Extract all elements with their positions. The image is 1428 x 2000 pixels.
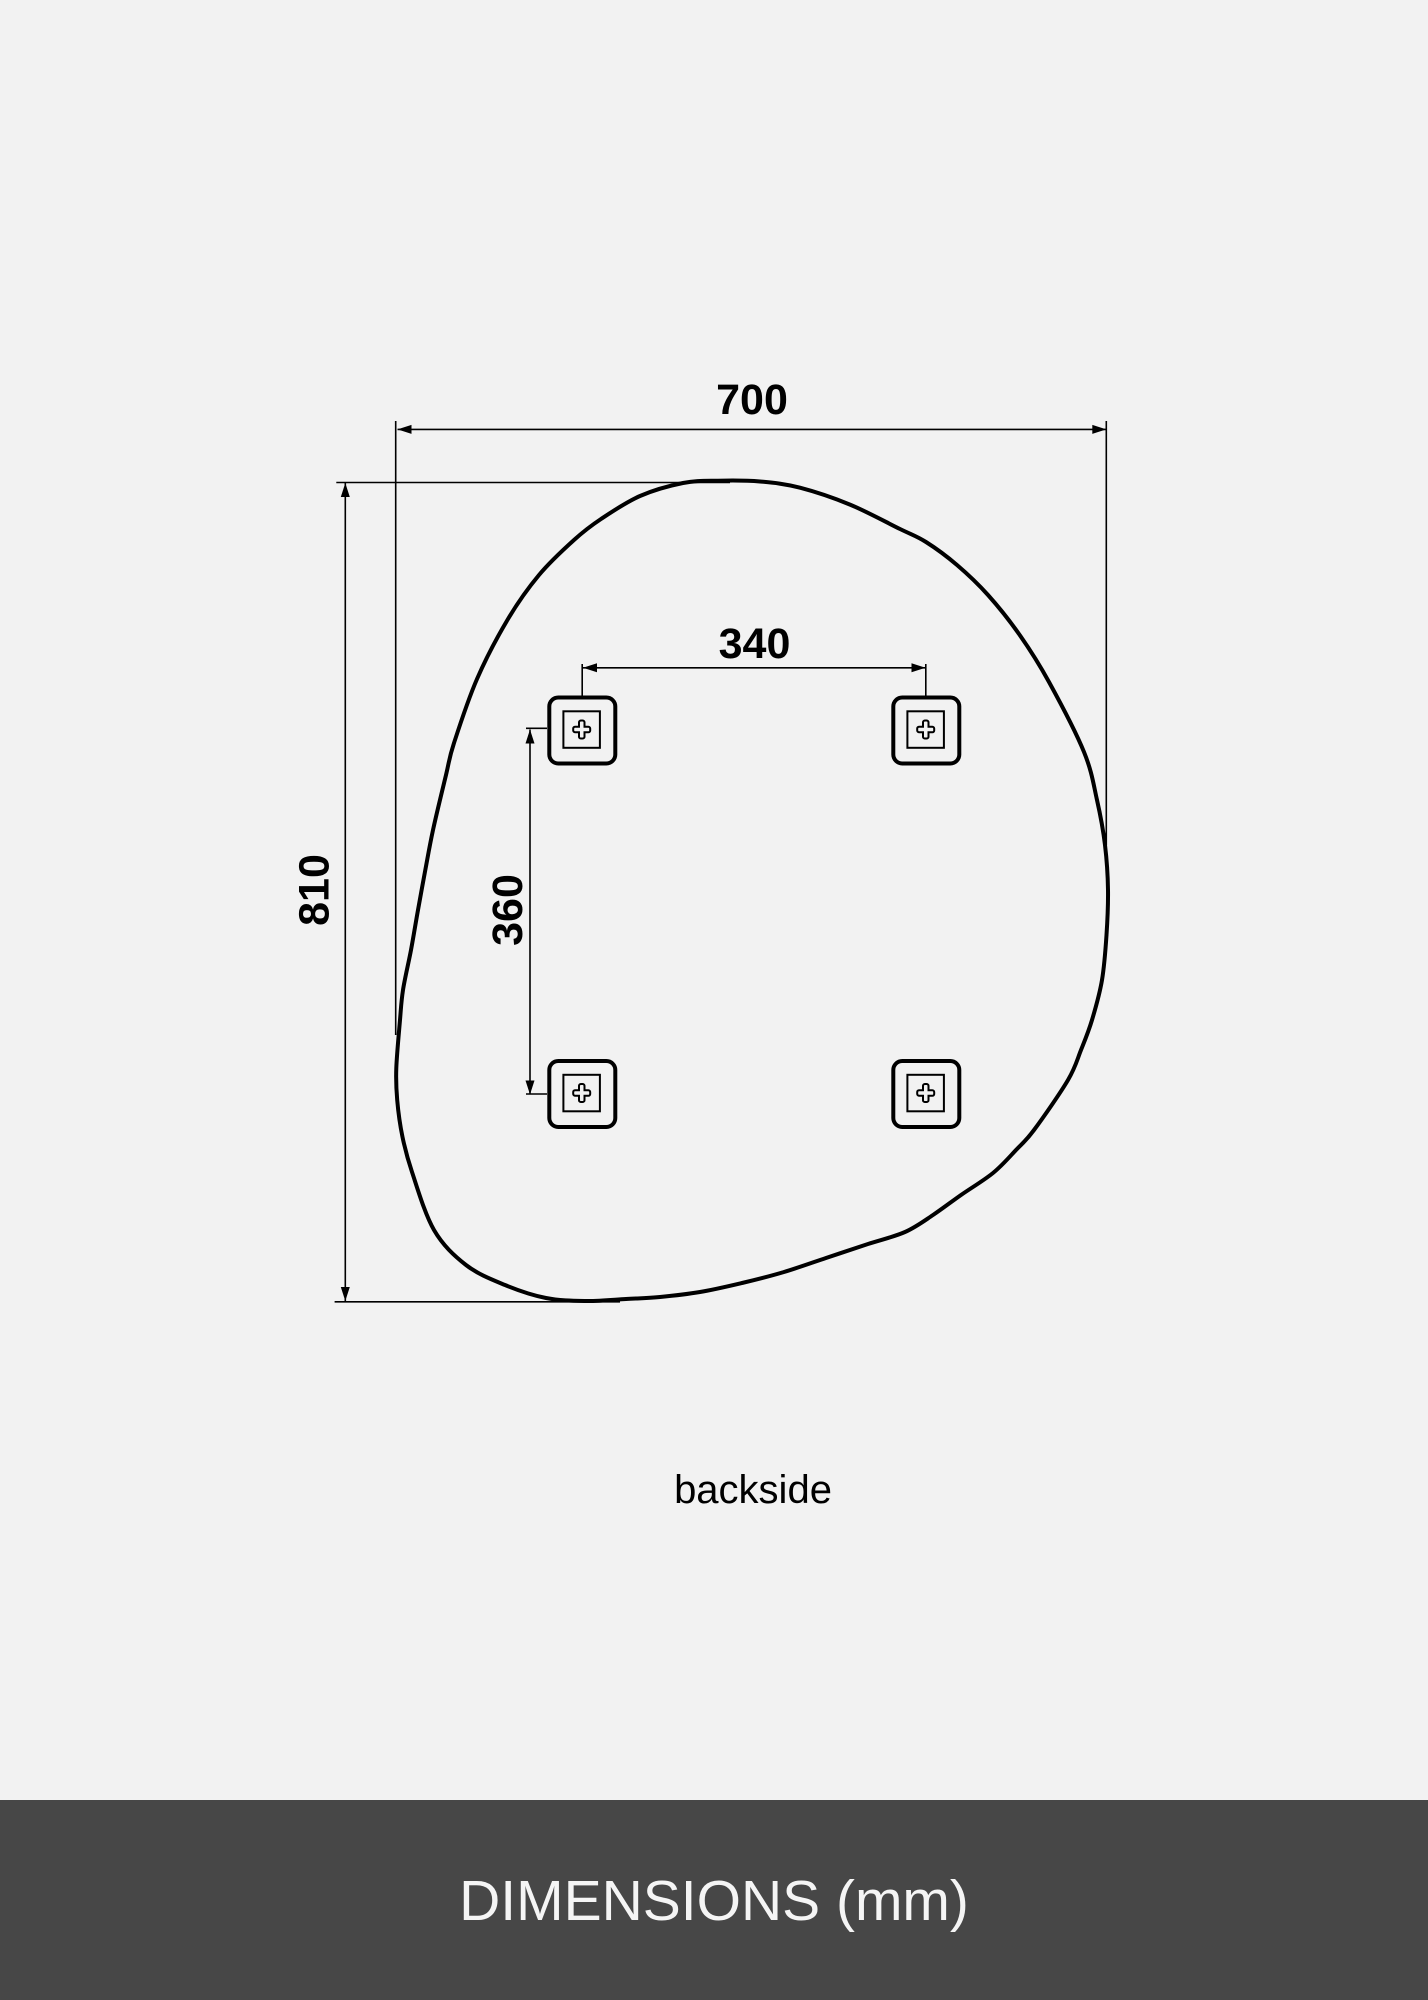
svg-text:810: 810: [291, 854, 339, 926]
svg-text:360: 360: [484, 874, 532, 946]
svg-text:340: 340: [719, 620, 791, 668]
svg-text:DIMENSIONS (mm): DIMENSIONS (mm): [459, 1869, 969, 1933]
svg-text:700: 700: [716, 376, 788, 424]
svg-text:backside: backside: [674, 1468, 832, 1512]
